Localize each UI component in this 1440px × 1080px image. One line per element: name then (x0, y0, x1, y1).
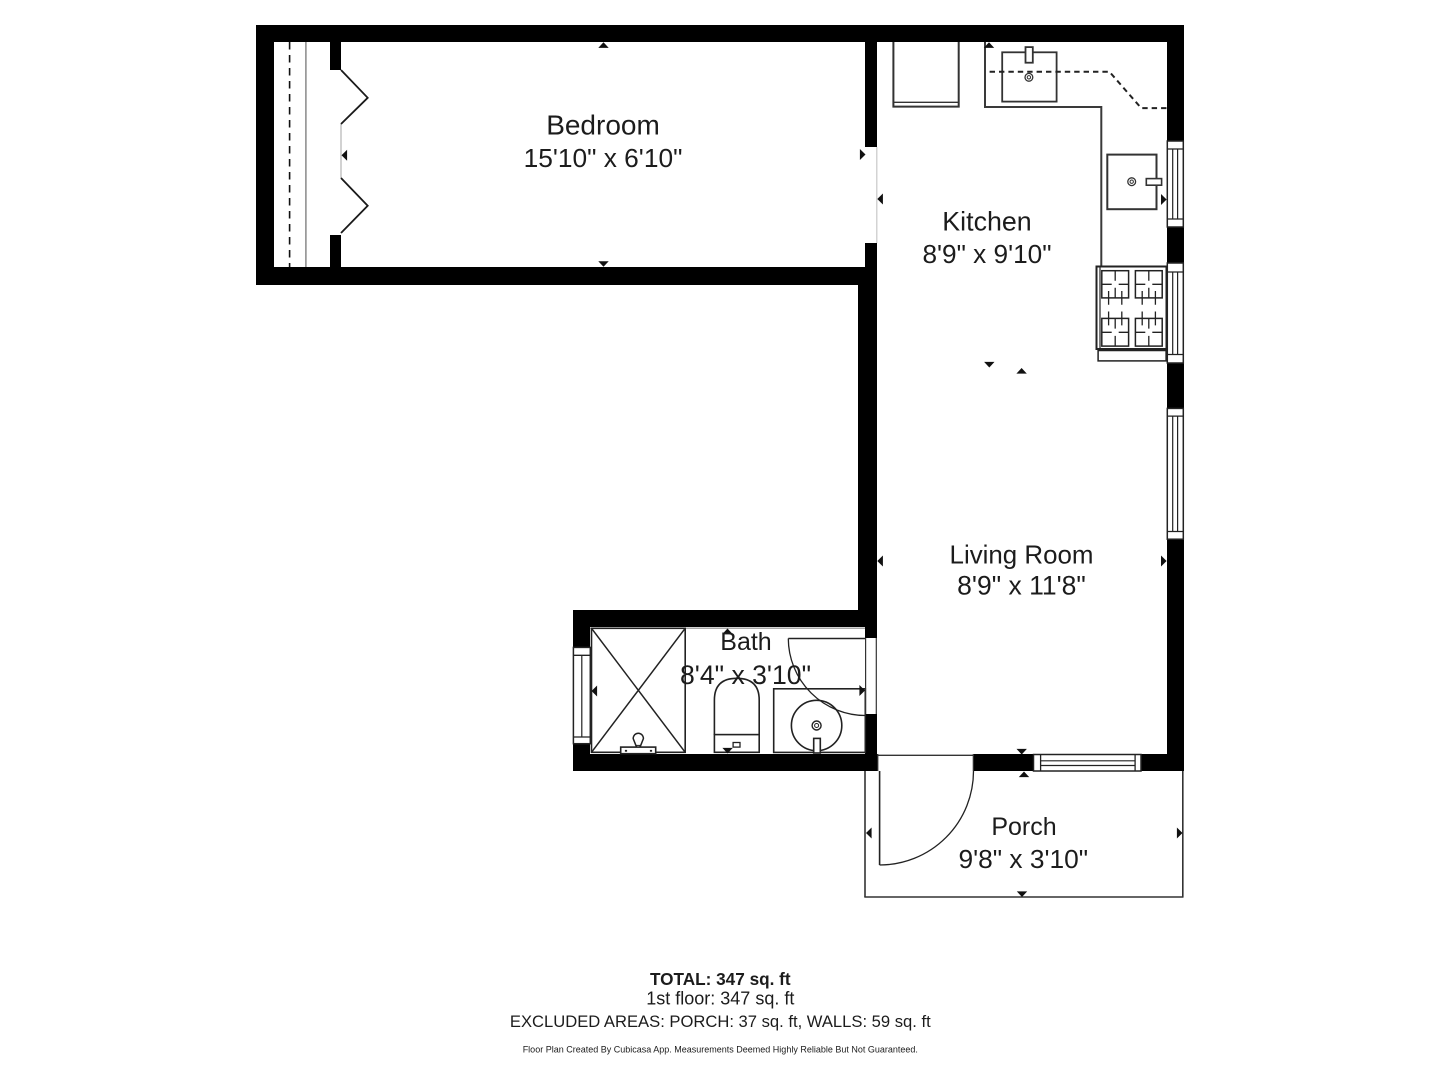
svg-text:TOTAL: 347 sq. ft: TOTAL: 347 sq. ft (650, 969, 791, 989)
svg-text:Bath: Bath (720, 628, 771, 656)
svg-text:Kitchen: Kitchen (942, 207, 1031, 237)
svg-text:9'8" x 3'10": 9'8" x 3'10" (958, 844, 1088, 874)
svg-text:Bedroom: Bedroom (546, 110, 660, 141)
svg-text:8'9" x 9'10": 8'9" x 9'10" (922, 239, 1051, 269)
svg-text:Living Room: Living Room (950, 542, 1094, 570)
svg-text:Porch: Porch (991, 813, 1056, 841)
svg-text:1st floor: 347 sq. ft: 1st floor: 347 sq. ft (646, 989, 794, 1009)
svg-text:8'4" x 3'10": 8'4" x 3'10" (680, 660, 811, 690)
svg-text:8'9" x 11'8": 8'9" x 11'8" (957, 571, 1086, 601)
svg-text:Floor Plan Created By Cubicasa: Floor Plan Created By Cubicasa App. Meas… (523, 1044, 918, 1054)
svg-text:15'10" x 6'10": 15'10" x 6'10" (524, 143, 683, 173)
svg-text:EXCLUDED AREAS: PORCH: 37 sq.: EXCLUDED AREAS: PORCH: 37 sq. ft, WALLS:… (510, 1012, 931, 1031)
